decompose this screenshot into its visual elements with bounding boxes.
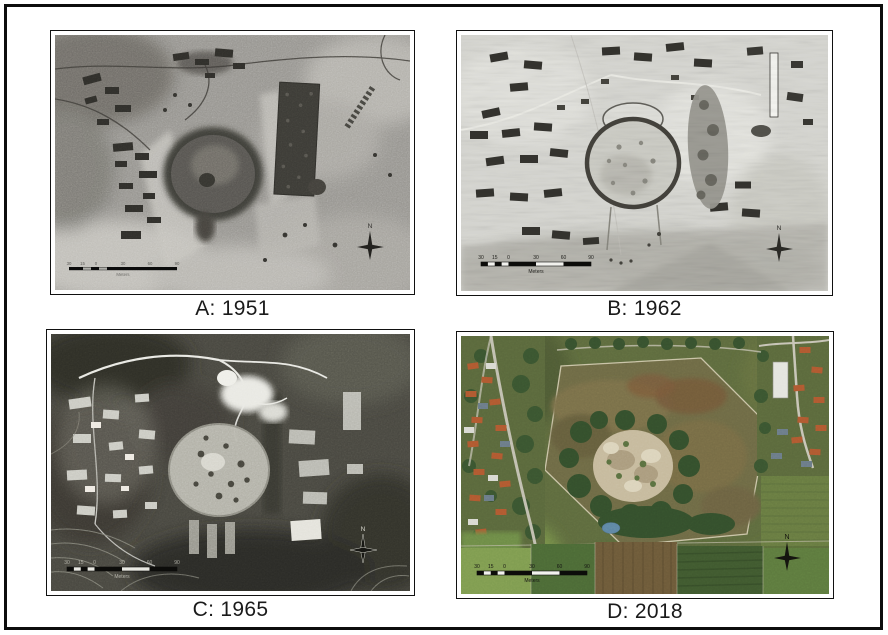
svg-text:30: 30 <box>529 564 535 570</box>
svg-text:0: 0 <box>507 255 510 261</box>
svg-text:90: 90 <box>175 261 180 266</box>
svg-text:60: 60 <box>147 560 153 566</box>
svg-text:30: 30 <box>67 261 72 266</box>
svg-text:30: 30 <box>474 564 480 570</box>
svg-text:N: N <box>784 534 789 541</box>
svg-text:60: 60 <box>557 564 563 570</box>
svg-text:Meters: Meters <box>114 574 130 580</box>
svg-text:30: 30 <box>533 255 539 261</box>
svg-text:N: N <box>361 526 366 533</box>
panel-a-caption: A: 1951 <box>50 297 415 321</box>
svg-text:90: 90 <box>588 255 594 261</box>
panel-d: 30 15 0 30 60 90 Meters N <box>456 331 834 599</box>
svg-text:15: 15 <box>80 261 85 266</box>
svg-text:15: 15 <box>488 564 494 570</box>
photo-c-svg: 30 15 0 30 60 90 Meters N <box>51 334 410 591</box>
svg-text:30: 30 <box>478 255 484 261</box>
aerial-photo-1965: 30 15 0 30 60 90 Meters N <box>51 334 410 591</box>
panel-c: 30 15 0 30 60 90 Meters N <box>46 329 415 596</box>
panel-d-caption: D: 2018 <box>456 600 834 624</box>
svg-text:15: 15 <box>492 255 498 261</box>
svg-text:Meters: Meters <box>528 269 544 275</box>
panel-c-caption: C: 1965 <box>46 598 415 622</box>
svg-text:30: 30 <box>121 261 126 266</box>
photo-b-svg: 30 15 0 30 60 90 Meters N <box>461 35 828 291</box>
svg-text:0: 0 <box>503 564 506 570</box>
photo-d-svg: 30 15 0 30 60 90 Meters N <box>461 336 829 594</box>
panel-a: 30 15 0 30 60 90 Meters N <box>50 30 415 295</box>
photo-a-grain <box>55 35 410 290</box>
svg-text:30: 30 <box>64 560 70 566</box>
svg-text:15: 15 <box>78 560 84 566</box>
photo-b-grain <box>461 35 828 291</box>
svg-text:30: 30 <box>119 560 125 566</box>
svg-text:Meters: Meters <box>524 578 540 584</box>
panel-b: 30 15 0 30 60 90 Meters N <box>456 30 833 296</box>
svg-text:90: 90 <box>174 560 180 566</box>
satellite-photo-2018: 30 15 0 30 60 90 Meters N <box>461 336 829 594</box>
svg-text:N: N <box>777 225 782 232</box>
svg-text:90: 90 <box>584 564 590 570</box>
photo-a-svg: 30 15 0 30 60 90 Meters N <box>55 35 410 290</box>
figure-page: 30 15 0 30 60 90 Meters N <box>0 0 888 635</box>
svg-text:0: 0 <box>93 560 96 566</box>
svg-text:N: N <box>368 223 373 230</box>
svg-text:60: 60 <box>561 255 567 261</box>
photo-c-grain <box>51 334 410 591</box>
aerial-photo-1962: 30 15 0 30 60 90 Meters N <box>461 35 828 291</box>
aerial-photo-1951: 30 15 0 30 60 90 Meters N <box>55 35 410 290</box>
photo-d-grain <box>461 336 829 594</box>
svg-text:Meters: Meters <box>116 272 129 277</box>
panel-b-caption: B: 1962 <box>456 297 833 321</box>
svg-text:60: 60 <box>148 261 153 266</box>
